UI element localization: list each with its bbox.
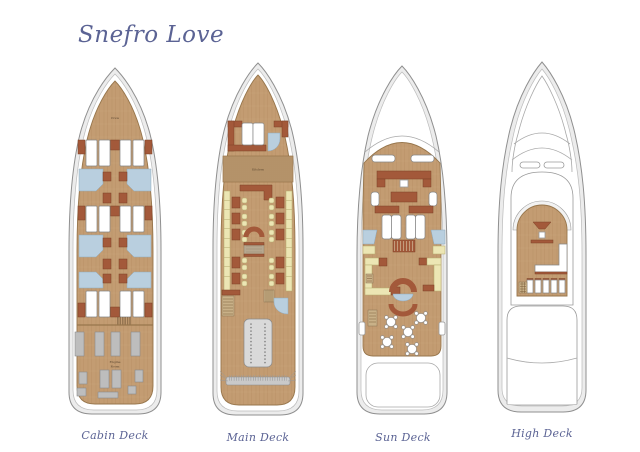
tank-rack (244, 319, 272, 367)
deck-plan-page: Snefro Love Crew (0, 0, 640, 452)
cabin-deck-label: Cabin Deck (62, 429, 168, 442)
main-deck-drawing: Kitchen (206, 61, 310, 424)
cabin-deck-drawing: Crew (62, 66, 168, 422)
sun-deck-label: Sun Deck (351, 431, 455, 444)
kitchen: Kitchen (223, 156, 293, 182)
main-deck-label: Main Deck (206, 431, 310, 444)
roof-hatch (544, 162, 564, 168)
engine-room-label-2: Room (111, 365, 120, 369)
stairs (519, 282, 527, 293)
sun-deck-plan: Sun Deck (351, 64, 455, 444)
cabin-deck-plan: Crew (62, 66, 168, 442)
page-title: Snefro Love (78, 22, 224, 48)
kitchen-label: Kitchen (252, 168, 264, 172)
sun-loungers (527, 279, 565, 294)
high-deck-label: High Deck (491, 427, 593, 440)
roof-hatch (520, 162, 540, 168)
stairs (368, 310, 377, 326)
stairs (393, 240, 415, 252)
sun-deck-drawing (351, 64, 455, 424)
high-deck-drawing (491, 60, 593, 420)
high-deck-plan: High Deck (491, 60, 593, 440)
aft-deck-outline (507, 306, 577, 405)
engine-room-label-1: Engine (109, 360, 120, 364)
main-deck-plan: Kitchen (206, 61, 310, 444)
crew-area-label: Crew (111, 116, 120, 120)
